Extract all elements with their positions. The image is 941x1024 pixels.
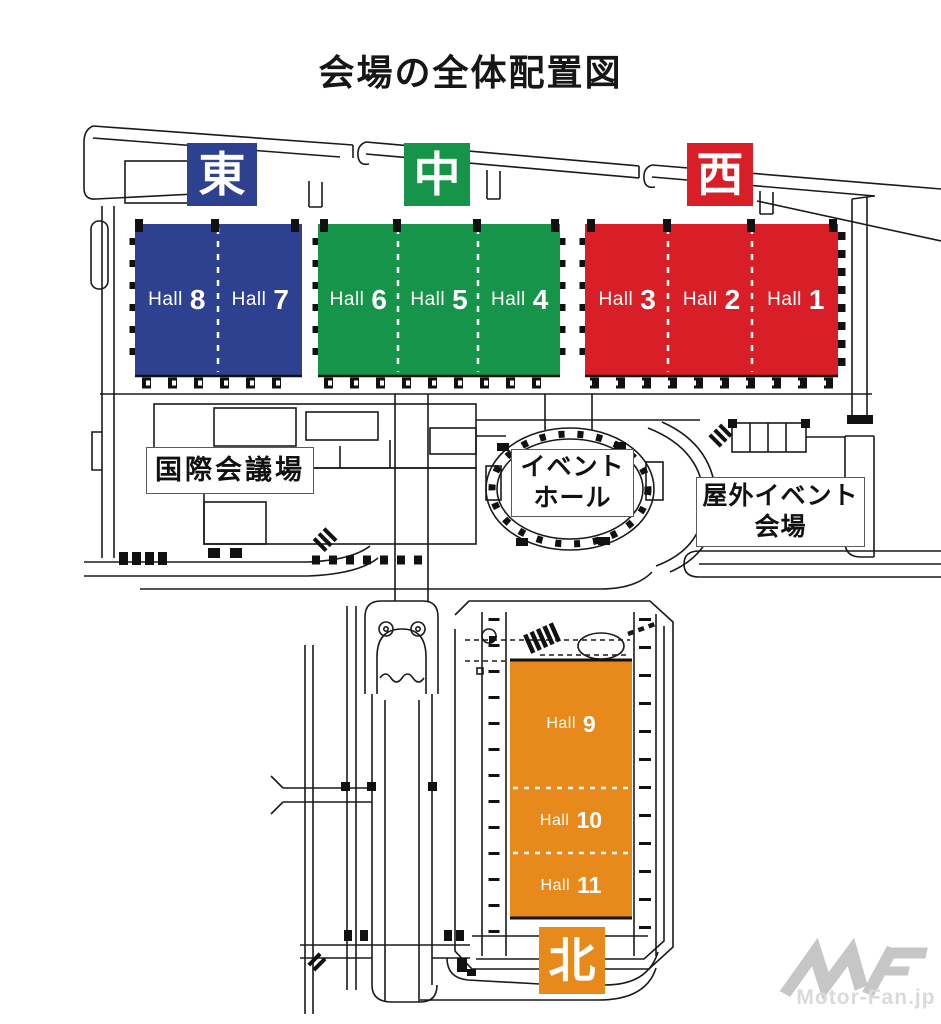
hall-word: Hall <box>599 289 634 311</box>
hall-11: Hall 11 <box>510 853 632 918</box>
hall-number: 3 <box>640 284 656 316</box>
hall-number: 2 <box>725 284 741 316</box>
hall-word: Hall <box>410 289 445 311</box>
hall-word: Hall <box>148 289 183 311</box>
hall-number: 1 <box>809 284 825 316</box>
west-hall-block: Hall 3 Hall 2 Hall 1 <box>585 224 838 376</box>
hall-word: Hall <box>683 289 718 311</box>
hall-number: 6 <box>371 284 387 316</box>
north-area-badge: 北 <box>539 927 605 994</box>
event-hall-text-line2: ホール <box>533 483 611 514</box>
hall-number: 9 <box>583 711 596 738</box>
conference-hall-label: 国際会議場 <box>146 447 314 494</box>
outdoor-venue-text-line2: 会場 <box>754 512 806 543</box>
north-area-label: 北 <box>549 937 596 984</box>
hall-2: Hall 2 <box>669 224 753 376</box>
center-area-label: 中 <box>414 151 461 198</box>
hall-number: 5 <box>452 284 468 316</box>
hall-word: Hall <box>541 877 571 895</box>
hall-number: 11 <box>577 872 601 899</box>
hall-3: Hall 3 <box>585 224 669 376</box>
hall-number: 7 <box>273 284 289 316</box>
conference-hall-text: 国際会議場 <box>155 455 305 486</box>
hall-word: Hall <box>540 812 570 830</box>
hall-10: Hall 10 <box>510 788 632 853</box>
hall-number: 8 <box>190 284 206 316</box>
hall-word: Hall <box>330 289 365 311</box>
east-hall-block: Hall 8 Hall 7 <box>135 224 302 376</box>
hall-8: Hall 8 <box>135 224 219 376</box>
north-hall-block: Hall 9 Hall 10 Hall 11 <box>510 660 632 918</box>
east-area-label: 東 <box>199 151 246 198</box>
center-hall-block: Hall 6 Hall 5 Hall 4 <box>318 224 560 376</box>
hall-5: Hall 5 <box>399 224 480 376</box>
west-area-label: 西 <box>697 151 744 198</box>
hall-4: Hall 4 <box>479 224 560 376</box>
hall-6: Hall 6 <box>318 224 399 376</box>
event-hall-text-line1: イベント <box>520 452 624 483</box>
hall-word: Hall <box>491 289 526 311</box>
east-area-badge: 東 <box>187 143 257 206</box>
center-area-badge: 中 <box>404 143 470 206</box>
hall-number: 10 <box>576 807 602 834</box>
west-area-badge: 西 <box>687 143 753 206</box>
event-hall-label: イベント ホール <box>511 449 634 517</box>
hall-word: Hall <box>546 715 576 733</box>
outdoor-venue-text-line1: 屋外イベント <box>702 481 858 512</box>
watermark-text: Motor-Fan.jp <box>791 986 941 1010</box>
hall-1: Hall 1 <box>754 224 838 376</box>
outdoor-venue-label: 屋外イベント 会場 <box>696 477 865 547</box>
hall-word: Hall <box>232 289 267 311</box>
hall-7: Hall 7 <box>219 224 303 376</box>
hall-number: 4 <box>533 284 549 316</box>
venue-layout-map: 会場の全体配置図 東 中 西 北 Hall 8 Hall 7 Hall 6 Ha… <box>0 0 941 1024</box>
page-title: 会場の全体配置図 <box>0 44 941 96</box>
hall-word: Hall <box>767 289 802 311</box>
hall-9: Hall 9 <box>510 660 632 788</box>
